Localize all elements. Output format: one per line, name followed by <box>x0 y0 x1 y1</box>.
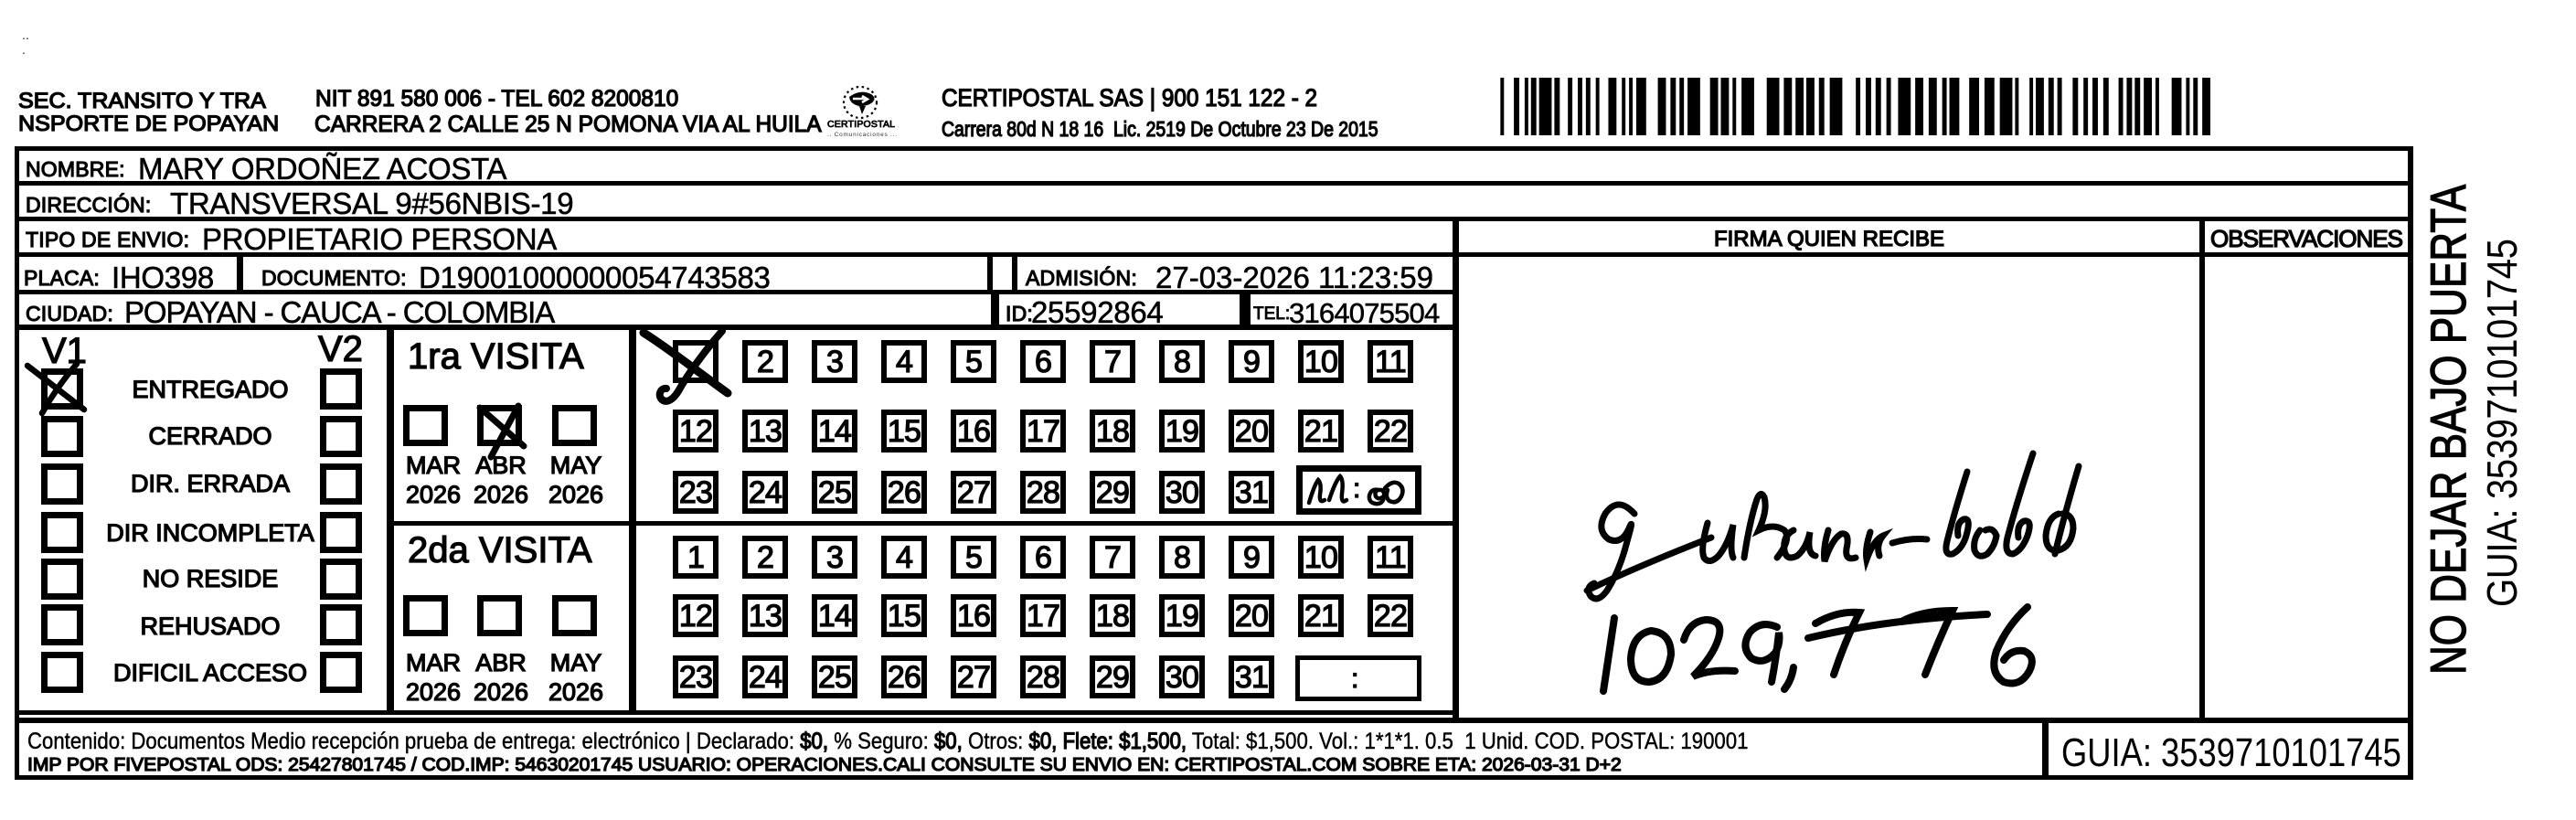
svg-text:.. Comunicaciones ...: .. Comunicaciones ... <box>827 132 897 138</box>
svg-text:CERTIPOSTAL: CERTIPOSTAL <box>827 119 895 130</box>
